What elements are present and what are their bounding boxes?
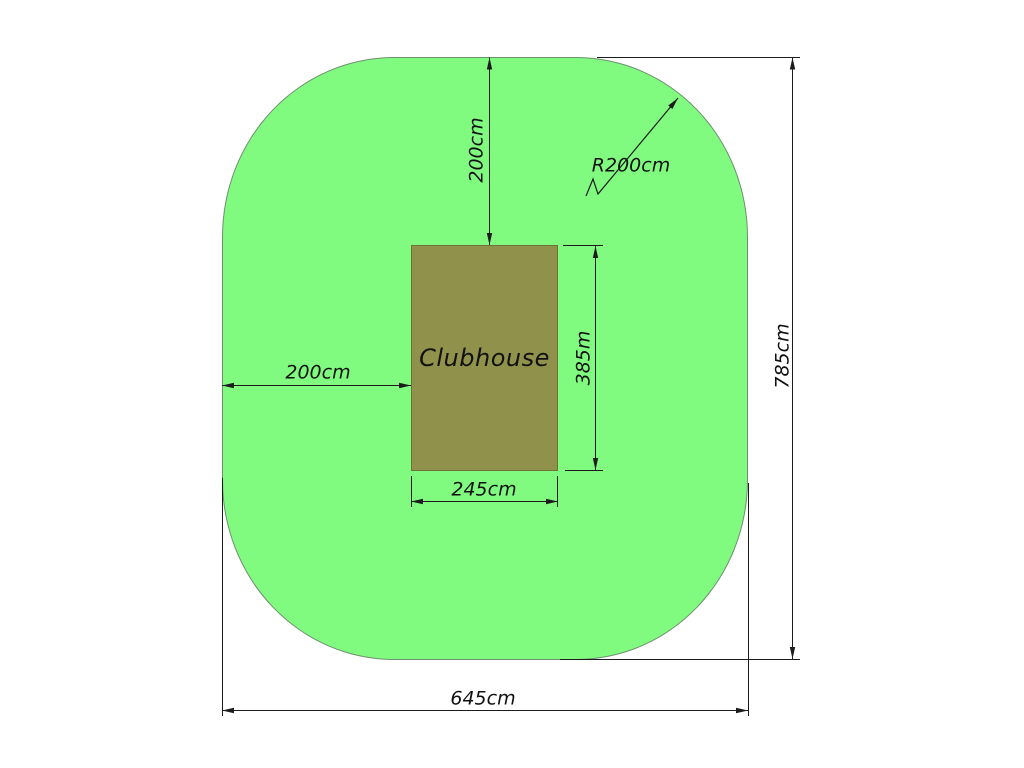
- dim-label-corner-radius: R200cm: [592, 157, 670, 176]
- dim-label-clubhouse-height: 385m: [575, 331, 594, 386]
- dimension-lines-layer: [0, 0, 1024, 768]
- dim-label-left-offset: 200cm: [285, 364, 350, 383]
- dim-label-top-offset: 200cm: [468, 117, 487, 182]
- site-plan-drawing: Clubhouse 200cm R200cm 785cm 200cm 385m: [0, 0, 1024, 768]
- dim-label-clubhouse-width: 245cm: [451, 481, 516, 500]
- radius-leader-line: [586, 98, 678, 196]
- dim-label-overall-width: 645cm: [450, 690, 515, 709]
- dim-label-overall-height: 785cm: [774, 323, 793, 388]
